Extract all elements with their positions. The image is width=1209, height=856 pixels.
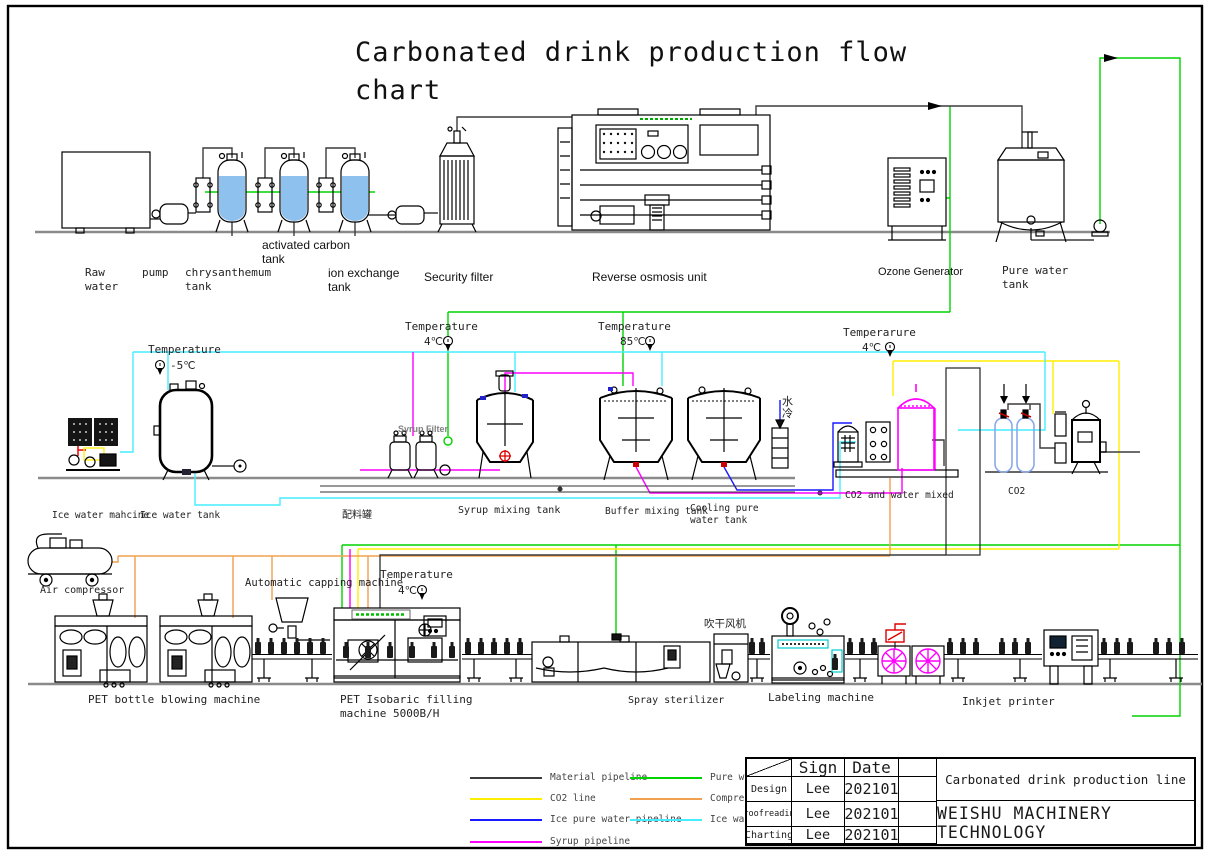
capping-hopper-drawing: [269, 598, 330, 640]
label-pet-blowing-machine: PET bottle blowing machine: [88, 693, 260, 707]
filling-machine-drawing: [334, 608, 460, 682]
ozone-generator-drawing: [888, 158, 946, 240]
label-water-cooling: 水冷: [782, 396, 796, 420]
label-temp-buffer: Temperature: [598, 320, 671, 334]
title-block: Sign Date Design Lee 202101 Proofreading…: [745, 757, 1196, 846]
row-design-date: 202101: [845, 777, 899, 802]
blow-dry-fan-drawing: [714, 634, 748, 682]
legend-swatch-ice-pure-water: [470, 819, 542, 821]
water-cooling-column-drawing: [772, 420, 788, 468]
buffer-mixing-tank-drawing: [600, 387, 672, 480]
ice-water-machine-drawing: [66, 418, 120, 470]
label-ozone-generator: Ozone Generator: [878, 266, 963, 279]
legend-swatch-pure-water: [630, 777, 702, 779]
value-temp-co2: 4℃: [862, 341, 881, 355]
flow-chart-drawing: [0, 0, 1209, 856]
page-title: Carbonated drink production flow chart: [355, 34, 930, 110]
value-temp-syrup: 4℃: [424, 335, 443, 349]
title-block-diagonal-cell: [747, 759, 792, 777]
inkjet-printer-drawing: [1044, 630, 1098, 684]
project-name: Carbonated drink production line: [937, 759, 1194, 801]
legend-item: Syrup pipeline: [470, 836, 630, 847]
label-temp-filling: Temperature: [380, 568, 453, 582]
label-raw-water: Raw water: [85, 266, 118, 294]
label-blow-dry-fan: 吹干风机: [704, 618, 746, 631]
label-pure-water-tank: Pure water tank: [1002, 264, 1068, 292]
row-design-sign: Lee: [792, 777, 845, 802]
label-ice-water-machine: Ice water mahcine: [52, 510, 149, 522]
legend-swatch-syrup: [470, 841, 542, 843]
label-chrysanthemum-tank: chrysanthemum tank: [185, 266, 271, 294]
label-inkjet-printer: Inkjet printer: [962, 695, 1055, 709]
legend-swatch-compressed-air: [630, 798, 702, 800]
cooling-pure-water-tank-drawing: [688, 387, 760, 480]
flow-arrow: [928, 102, 942, 110]
row-charting-date: 202101: [845, 827, 899, 844]
empty-cell: [899, 827, 937, 844]
label-activated-carbon-tank: activated carbon tank: [262, 238, 350, 267]
empty-cell: [899, 802, 937, 827]
air-compressor-drawing: [28, 534, 112, 586]
row-proofreading-role: Proofreading: [747, 802, 792, 827]
ice-water-tank-drawing: [154, 381, 246, 480]
pure-water-pipeline: [205, 58, 1180, 716]
value-temp-filling: 4℃: [398, 584, 417, 598]
reverse-osmosis-unit-drawing: [558, 109, 771, 230]
syrup-filter-drawing: [388, 431, 438, 478]
label-cooling-pure-water-tank: Cooling pure water tank: [690, 503, 759, 527]
security-filter-drawing: [438, 127, 476, 232]
row-design-role: Design: [747, 777, 792, 802]
legend-swatch-material: [470, 777, 542, 779]
label-batching-tank: 配料罐: [342, 510, 372, 523]
value-temp-buffer: 85℃: [620, 335, 646, 349]
flow-arrow-top-right: [1104, 54, 1118, 62]
value-temp-ice: -5℃: [170, 359, 196, 373]
label-co2: CO2: [1008, 486, 1025, 498]
company-name: WEISHU MACHINERY TECHNOLOGY: [937, 801, 1194, 844]
title-block-table: Sign Date Design Lee 202101 Proofreading…: [747, 759, 937, 844]
spray-sterilizer-drawing: [532, 634, 710, 682]
empty-cell: [899, 777, 937, 802]
label-security-filter: Security filter: [424, 270, 493, 284]
legend-item: CO2 line: [470, 793, 596, 804]
legend-item: Material pipeline: [470, 772, 647, 783]
pure-water-tank-drawing: [996, 132, 1108, 242]
legend-label: Syrup pipeline: [550, 836, 630, 847]
flow-chart-canvas: Carbonated drink production flow chart R…: [0, 0, 1209, 856]
legend-swatch-co2: [470, 798, 542, 800]
ice-water-pipeline: [120, 352, 1045, 505]
label-temp-co2: Temperarure: [843, 326, 916, 340]
label-temp-ice: Temperature: [148, 343, 221, 357]
label-ice-water-tank: Ice water tank: [140, 510, 220, 522]
label-labeling-machine: Labeling machine: [768, 691, 874, 705]
labeling-machine-drawing: [772, 608, 844, 683]
pump-1-drawing: [152, 204, 188, 224]
legend-label: CO2 line: [550, 793, 596, 804]
row-proofreading-date: 202101: [845, 802, 899, 827]
title-block-right: Carbonated drink production line WEISHU …: [937, 759, 1194, 844]
compressed-air-pipeline: [112, 478, 890, 618]
star-wheel-unit-drawing: [878, 624, 944, 684]
column-header-sign: Sign: [792, 759, 845, 777]
label-syrup-mixing-tank: Syrup mixing tank: [458, 505, 560, 518]
row-proofreading-sign: Lee: [792, 802, 845, 827]
label-reverse-osmosis-unit: Reverse osmosis unit: [592, 270, 707, 284]
label-spray-sterilizer: Spray sterilizer: [628, 695, 724, 708]
pet-blowing-machine-2: [160, 594, 252, 687]
conveyor: [252, 655, 1198, 660]
label-pump: pump: [142, 266, 169, 280]
label-ion-exchange-tank: ion exchange tank: [328, 266, 399, 295]
pet-blowing-machine-1: [55, 594, 147, 687]
row-charting-role: Charting: [747, 827, 792, 844]
label-air-compressor: Air compressor: [40, 585, 124, 598]
label-temp-syrup: Temperature: [405, 320, 478, 334]
column-header-date: Date: [845, 759, 899, 777]
row-charting-sign: Lee: [792, 827, 845, 844]
label-co2-water-mixed: CO2 and water mixed: [845, 490, 954, 502]
co2-water-mixer-drawing: [834, 384, 958, 477]
legend-swatch-ice-water: [630, 819, 702, 821]
syrup-mixing-tank-drawing: [440, 371, 533, 478]
filter-tanks-drawing: [194, 152, 371, 232]
raw-water-tank-drawing: [62, 152, 150, 233]
label-syrup-filter: Syrup Filter: [398, 424, 448, 435]
label-pet-filling-machine: PET Isobaric filling machine 5000B/H: [340, 693, 472, 721]
riser-duct: [946, 368, 980, 555]
co2-station-drawing: [995, 384, 1106, 474]
empty-cell: [899, 759, 937, 777]
